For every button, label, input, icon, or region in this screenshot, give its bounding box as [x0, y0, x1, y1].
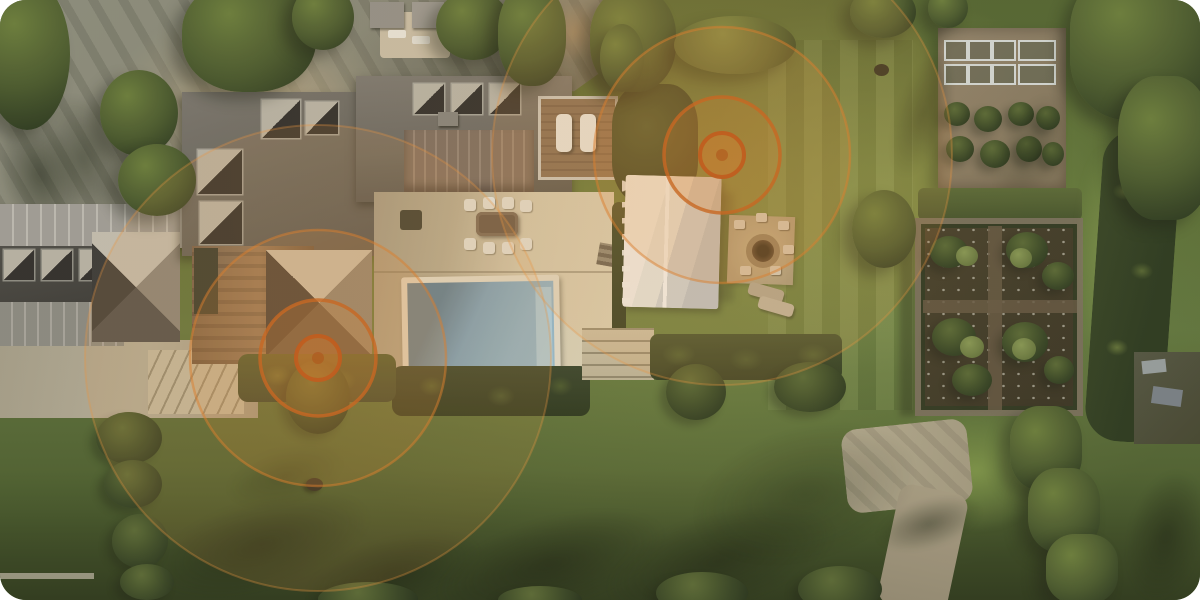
- hero-image-stage: [0, 0, 1200, 600]
- sensor-range-right-ring: [716, 149, 728, 161]
- sensor-range-left[interactable]: [85, 125, 551, 591]
- sensor-coverage-overlay: [0, 0, 1200, 600]
- sensor-range-right[interactable]: [492, 0, 952, 385]
- sensor-range-left-ring: [312, 352, 324, 364]
- aerial-estate-photo: [0, 0, 1200, 600]
